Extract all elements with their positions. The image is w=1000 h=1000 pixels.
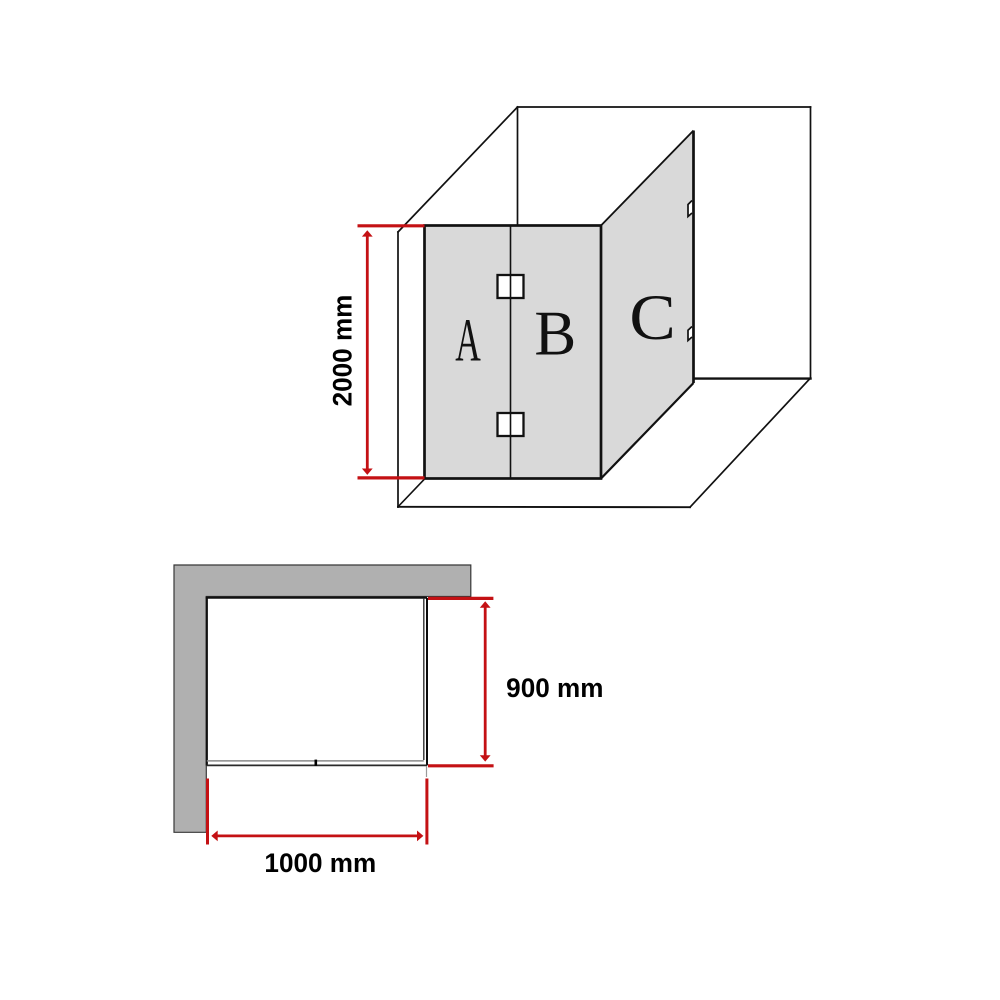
- svg-text:2000 mm: 2000 mm: [327, 295, 358, 407]
- svg-text:A: A: [455, 307, 481, 374]
- svg-text:C: C: [629, 281, 675, 353]
- svg-text:900 mm: 900 mm: [506, 673, 603, 704]
- svg-text:B: B: [534, 298, 576, 369]
- svg-text:1000 mm: 1000 mm: [264, 848, 376, 879]
